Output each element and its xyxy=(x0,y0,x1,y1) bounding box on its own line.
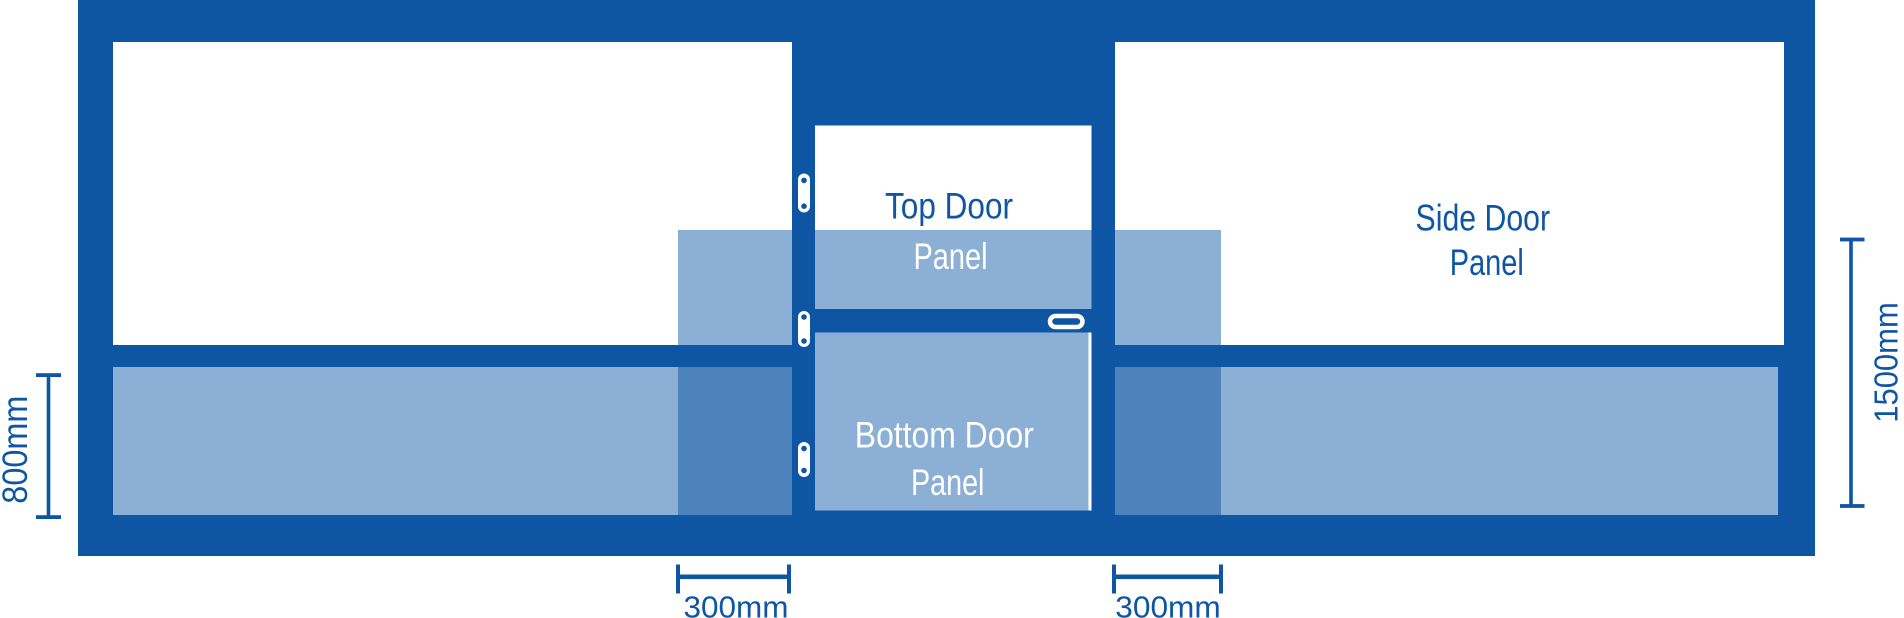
svg-text:800mm: 800mm xyxy=(0,396,35,504)
svg-text:Panel: Panel xyxy=(1450,242,1524,283)
svg-text:Panel: Panel xyxy=(914,236,988,277)
svg-text:Bottom Door: Bottom Door xyxy=(855,414,1034,456)
svg-text:300mm: 300mm xyxy=(1115,590,1221,618)
svg-text:1500mm: 1500mm xyxy=(1869,302,1904,423)
svg-text:Side Door: Side Door xyxy=(1416,198,1551,239)
svg-text:Panel: Panel xyxy=(911,462,985,503)
svg-text:300mm: 300mm xyxy=(684,590,789,618)
svg-text:Top Door: Top Door xyxy=(885,186,1013,227)
